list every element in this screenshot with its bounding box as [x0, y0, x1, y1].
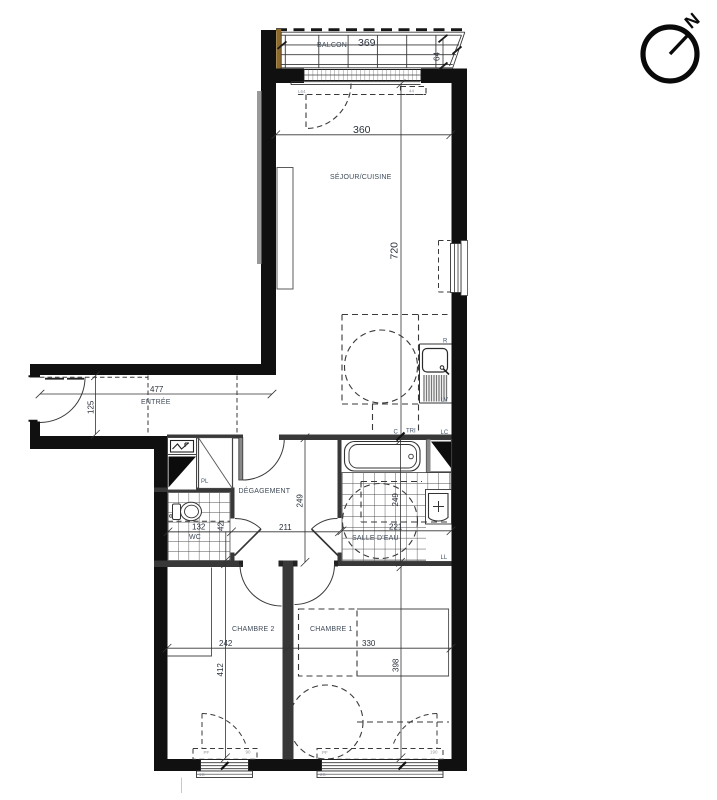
svg-text:WC: WC	[189, 534, 201, 541]
svg-text:90: 90	[246, 750, 252, 755]
svg-text:44: 44	[409, 89, 415, 94]
svg-text:398: 398	[392, 658, 401, 672]
svg-text:249: 249	[391, 493, 400, 507]
svg-text:R: R	[443, 339, 448, 345]
svg-text:SALLE D'EAU: SALLE D'EAU	[352, 535, 399, 542]
svg-text:L64: L64	[298, 89, 306, 94]
svg-text:360: 360	[353, 124, 371, 136]
svg-text:C: C	[394, 430, 399, 436]
svg-text:64: 64	[433, 52, 442, 61]
svg-text:DÉGAGEMENT: DÉGAGEMENT	[239, 486, 291, 495]
svg-text:211: 211	[279, 523, 292, 532]
svg-text:42: 42	[217, 522, 226, 531]
svg-text:477: 477	[150, 385, 164, 394]
svg-text:PL: PL	[201, 479, 209, 485]
svg-text:LV: LV	[441, 398, 448, 404]
svg-text:242: 242	[219, 639, 233, 648]
svg-text:132: 132	[192, 523, 206, 532]
svg-text:SÉJOUR/CUISINE: SÉJOUR/CUISINE	[330, 172, 392, 181]
svg-text:1C: 1C	[199, 772, 206, 777]
svg-text:369: 369	[358, 37, 376, 49]
svg-text:BALCON: BALCON	[317, 42, 347, 49]
svg-text:249: 249	[296, 494, 305, 508]
svg-text:TRI: TRI	[406, 429, 416, 435]
svg-text:LL: LL	[441, 555, 448, 561]
svg-text:PF: PF	[322, 750, 328, 755]
svg-text:412: 412	[216, 663, 225, 677]
svg-text:PF: PF	[204, 750, 210, 755]
svg-text:720: 720	[389, 242, 401, 260]
svg-text:221: 221	[389, 522, 403, 531]
svg-text:125: 125	[87, 400, 96, 414]
svg-text:CHAMBRE 2: CHAMBRE 2	[232, 626, 275, 633]
svg-text:LC: LC	[441, 430, 449, 436]
svg-text:330: 330	[362, 639, 376, 648]
svg-text:190: 190	[430, 750, 438, 755]
svg-text:ENTRÉE: ENTRÉE	[141, 397, 171, 406]
svg-text:CHAMBRE 1: CHAMBRE 1	[310, 626, 353, 633]
svg-text:2C: 2C	[320, 772, 327, 777]
